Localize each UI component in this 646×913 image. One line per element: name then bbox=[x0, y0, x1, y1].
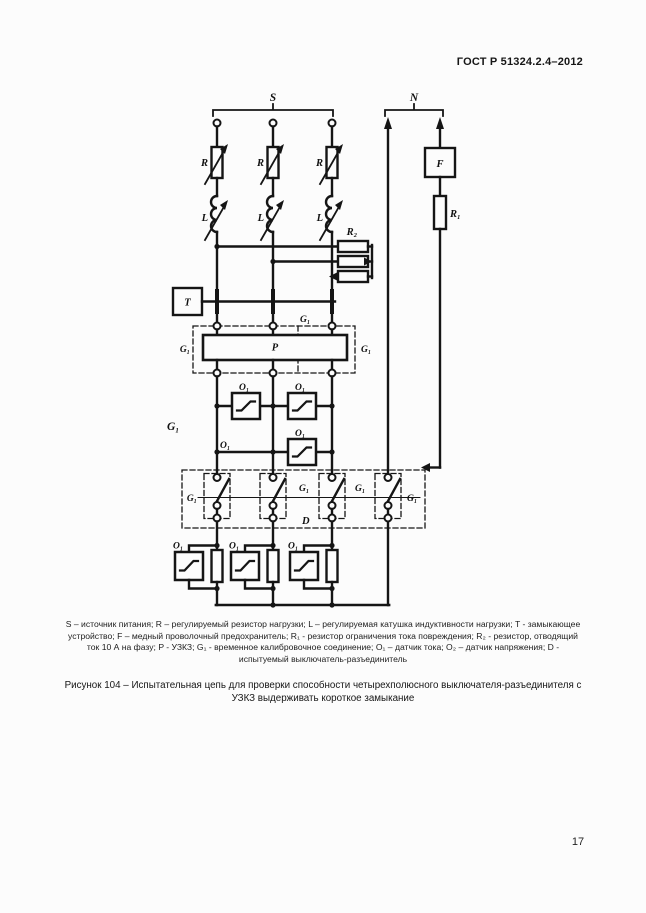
load-resistor-label: R bbox=[256, 158, 264, 169]
r2-label: R₂ bbox=[346, 227, 358, 238]
g1-label-pole1: G₁ bbox=[187, 494, 197, 504]
bottom-load-2 bbox=[231, 522, 279, 606]
o1-label: O₁ bbox=[239, 383, 249, 393]
o1-label: O₁ bbox=[173, 542, 183, 552]
source-bracket bbox=[213, 104, 333, 116]
bottom-load-1 bbox=[175, 522, 223, 606]
legend-line: ток 10 А на фазу; P - УЗКЗ; G₁ - временн… bbox=[42, 642, 604, 654]
legend-line: испытуемый выключатель-разъединитель bbox=[42, 654, 604, 666]
neutral-pole-line bbox=[384, 117, 392, 605]
neutral-bracket bbox=[385, 104, 443, 116]
load-inductor-label: L bbox=[316, 213, 323, 224]
r1-label: R₁ bbox=[449, 209, 461, 220]
caption-line: УЗКЗ выдерживать короткое замыкание bbox=[43, 692, 603, 705]
g1-label-pole2: G₁ bbox=[299, 484, 309, 494]
sensor-row-1 bbox=[214, 393, 334, 419]
sensor-row-2 bbox=[214, 439, 334, 465]
fuse-branch bbox=[421, 117, 455, 472]
g1-label-left: G₁ bbox=[180, 345, 190, 355]
g1-label-right: G₁ bbox=[361, 345, 371, 355]
caption-line: Рисунок 104 – Испытательная цепь для про… bbox=[43, 679, 603, 692]
dut-label: D bbox=[301, 516, 310, 527]
g1-label-pole3: G₁ bbox=[355, 484, 365, 494]
p-label: P bbox=[272, 343, 279, 354]
load-resistor-label: R bbox=[315, 158, 323, 169]
legend-line: устройство; F – медный проволочный предо… bbox=[42, 631, 604, 643]
g1-label-pole4: G₁ bbox=[407, 494, 417, 504]
r2-resistor-bank bbox=[217, 241, 372, 282]
legend-line: S – источник питания; R – регулируемый р… bbox=[42, 619, 604, 631]
o1-label: O₁ bbox=[288, 542, 298, 552]
o1-label: O₁ bbox=[295, 383, 305, 393]
fuse-label: F bbox=[435, 159, 443, 170]
test-circuit-diagram: S N F R₁ R L bbox=[0, 0, 646, 913]
load-inductor-label: L bbox=[201, 213, 208, 224]
g1-label-outer: G₁ bbox=[167, 421, 179, 433]
neutral-label: N bbox=[409, 92, 419, 104]
bottom-bus bbox=[216, 602, 389, 607]
g1-label-top: G₁ bbox=[300, 315, 310, 325]
page-number: 17 bbox=[566, 836, 590, 848]
closing-device bbox=[173, 288, 335, 315]
o1-label: O₁ bbox=[295, 429, 305, 439]
source-label: S bbox=[270, 92, 276, 104]
phase-2-branch bbox=[261, 120, 284, 323]
figure-legend: S – источник питания; R – регулируемый р… bbox=[42, 619, 604, 665]
phase-3-branch bbox=[320, 120, 343, 323]
o1-label: O₁ bbox=[220, 441, 230, 451]
bottom-load-3 bbox=[290, 522, 338, 606]
load-inductor-label: L bbox=[257, 213, 264, 224]
phase-1-branch bbox=[205, 120, 228, 323]
o1-label: O₁ bbox=[229, 542, 239, 552]
load-resistor-label: R bbox=[200, 158, 208, 169]
closing-device-label: T bbox=[184, 298, 191, 309]
figure-caption: Рисунок 104 – Испытательная цепь для про… bbox=[43, 679, 603, 705]
